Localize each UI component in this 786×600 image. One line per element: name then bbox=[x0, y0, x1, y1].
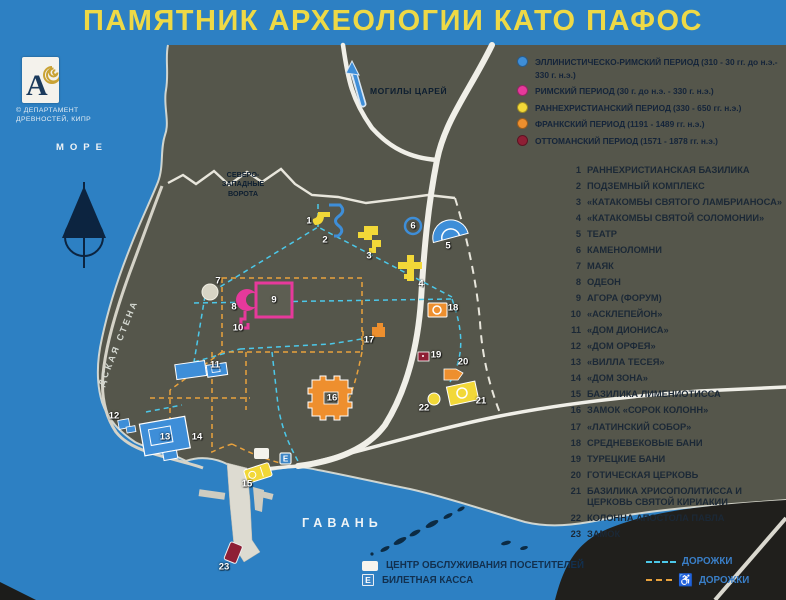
list-item: 3 «КАТАКОМБЫ СВЯТОГО ЛАМБРИАНОСА» bbox=[566, 197, 784, 208]
list-item: 22 КОЛОННА АПОСТОЛА ПАВЛА bbox=[566, 513, 784, 524]
site-name: ОДЕОН bbox=[587, 277, 784, 288]
list-item: 11 «ДОМ ДИОНИСА» bbox=[566, 325, 784, 336]
period-dates: (30 г. до н.э. - 330 г. н.э.) bbox=[617, 86, 714, 96]
site-marker: 5 bbox=[445, 241, 450, 252]
site-number: 21 bbox=[566, 486, 581, 508]
list-item: 20 ГОТИЧЕСКАЯ ЦЕРКОВЬ bbox=[566, 470, 784, 481]
list-item: 17 «ЛАТИНСКИЙ СОБОР» bbox=[566, 422, 784, 433]
paths-label: ДОРОЖКИ bbox=[682, 556, 732, 567]
wheelchair-icon: ♿ bbox=[678, 574, 693, 586]
paths-legend: ДОРОЖКИ ♿ ДОРОЖКИ bbox=[646, 556, 749, 586]
site-number: 18 bbox=[566, 438, 581, 449]
list-item: 1 РАННЕХРИСТИАНСКАЯ БАЗИЛИКА bbox=[566, 165, 784, 176]
list-item: 10 «АСКЛЕПЕЙОН» bbox=[566, 309, 784, 320]
site-name: КОЛОННА АПОСТОЛА ПАВЛА bbox=[587, 513, 784, 524]
site-number: 16 bbox=[566, 405, 581, 416]
orange-dashed-line-icon bbox=[646, 579, 672, 581]
site-number: 13 bbox=[566, 357, 581, 368]
ticket-office-label: БИЛЕТНАЯ КАССА bbox=[382, 575, 473, 586]
period-color-dot bbox=[517, 118, 528, 129]
nw-gate-label: СЕВЕРО- ЗАПАДНЫЕ ВОРОТА bbox=[210, 170, 276, 198]
site-name: РАННЕХРИСТИАНСКАЯ БАЗИЛИКА bbox=[587, 165, 784, 176]
site-number: 2 bbox=[566, 181, 581, 192]
period-dates: (1191 - 1489 гг. н.э.) bbox=[627, 119, 704, 129]
period-dates: (1571 - 1878 гг. н.э.) bbox=[640, 136, 718, 146]
site-name: КАМЕНОЛОМНИ bbox=[587, 245, 784, 256]
site-marker: 7 bbox=[215, 276, 220, 287]
legend-paths: ДОРОЖКИ bbox=[646, 556, 749, 567]
site-number: 23 bbox=[566, 529, 581, 540]
site-number: 14 bbox=[566, 373, 581, 384]
north-symbol bbox=[62, 182, 106, 268]
list-item: 15 БАЗИЛИКА ЛИМЕНИОТИССА bbox=[566, 389, 784, 400]
site-marker: 3 bbox=[366, 251, 371, 262]
site-number: 5 bbox=[566, 229, 581, 240]
list-item: 8 ОДЕОН bbox=[566, 277, 784, 288]
site-marker: 16 bbox=[327, 393, 338, 404]
facilities-legend: ЦЕНТР ОБСЛУЖИВАНИЯ ПОСЕТИТЕЛЕЙ E БИЛЕТНА… bbox=[362, 560, 584, 586]
list-item: 6 КАМЕНОЛОМНИ bbox=[566, 245, 784, 256]
list-item: 14 «ДОМ ЗОНА» bbox=[566, 373, 784, 384]
site-marker: 14 bbox=[192, 432, 203, 443]
sea-label: МОРЕ bbox=[56, 142, 108, 153]
svg-text:E: E bbox=[283, 455, 289, 464]
site-name: ПОДЗЕМНЫЙ КОМПЛЕКС bbox=[587, 181, 784, 192]
site-name: БАЗИЛИКА ХРИСОПОЛИТИССА И ЦЕРКОВЬ СВЯТОЙ… bbox=[587, 486, 784, 508]
site-number: 19 bbox=[566, 454, 581, 465]
period-legend-item: ОТТОМАНСКИЙ ПЕРИОД(1571 - 1878 гг. н.э.) bbox=[517, 135, 783, 148]
site-name: «ДОМ ОРФЕЯ» bbox=[587, 341, 784, 352]
site-marker: 17 bbox=[364, 335, 375, 346]
list-item: 23 ЗАМОК bbox=[566, 529, 784, 540]
period-legend-item: ФРАНКСКИЙ ПЕРИОД(1191 - 1489 гг. н.э.) bbox=[517, 118, 783, 131]
site-number: 3 bbox=[566, 197, 581, 208]
site-marker: 19 bbox=[431, 350, 442, 361]
info-board: ПАМЯТНИК АРХЕОЛОГИИ КАТО ПАФОС bbox=[0, 0, 786, 600]
list-item: 5 ТЕАТР bbox=[566, 229, 784, 240]
site-marker: 8 bbox=[231, 302, 236, 313]
site-number: 10 bbox=[566, 309, 581, 320]
site-number: 6 bbox=[566, 245, 581, 256]
harbor-label: ГАВАНЬ bbox=[302, 516, 383, 530]
legend-ticket-office: E БИЛЕТНАЯ КАССА bbox=[362, 574, 584, 586]
site-name: ЗАМОК «СОРОК КОЛОНН» bbox=[587, 405, 784, 416]
list-item: 7 МАЯК bbox=[566, 261, 784, 272]
period-label: РИМСКИЙ ПЕРИОД bbox=[535, 86, 615, 96]
logo-caption: © ДЕПАРТАМЕНТ ДРЕВНОСТЕЙ, КИПР bbox=[16, 106, 91, 124]
site-marker: 11 bbox=[210, 360, 220, 371]
period-dates: (330 - 650 гг. н.э.) bbox=[673, 103, 741, 113]
period-color-dot bbox=[517, 56, 528, 67]
site-name: «ВИЛЛА ТЕСЕЯ» bbox=[587, 357, 784, 368]
site-number: 11 bbox=[566, 325, 581, 336]
site-name: ГОТИЧЕСКАЯ ЦЕРКОВЬ bbox=[587, 470, 784, 481]
cyan-dashed-line-icon bbox=[646, 561, 676, 563]
site-number: 12 bbox=[566, 341, 581, 352]
site-number: 9 bbox=[566, 293, 581, 304]
site-name: «ДОМ ЗОНА» bbox=[587, 373, 784, 384]
site-name: АГОРА (ФОРУМ) bbox=[587, 293, 784, 304]
list-item: 21 БАЗИЛИКА ХРИСОПОЛИТИССА И ЦЕРКОВЬ СВЯ… bbox=[566, 486, 784, 508]
site-name: ТУРЕЦКИЕ БАНИ bbox=[587, 454, 784, 465]
site-shape-19 bbox=[418, 352, 429, 361]
list-item: 18 СРЕДНЕВЕКОВЫЕ БАНИ bbox=[566, 438, 784, 449]
site-marker: 23 bbox=[219, 562, 230, 573]
site-name: СРЕДНЕВЕКОВЫЕ БАНИ bbox=[587, 438, 784, 449]
ticket-office-icon: E bbox=[280, 453, 291, 464]
site-number: 17 bbox=[566, 422, 581, 433]
site-marker: 10 bbox=[233, 323, 244, 334]
site-name: «ДОМ ДИОНИСА» bbox=[587, 325, 784, 336]
site-number: 22 bbox=[566, 513, 581, 524]
site-marker: 15 bbox=[242, 479, 253, 490]
site-marker: 4 bbox=[418, 279, 423, 290]
site-number: 20 bbox=[566, 470, 581, 481]
list-item: 4 «КАТАКОМБЫ СВЯТОЙ СОЛОМОНИИ» bbox=[566, 213, 784, 224]
list-item: 2 ПОДЗЕМНЫЙ КОМПЛЕКС bbox=[566, 181, 784, 192]
site-name: БАЗИЛИКА ЛИМЕНИОТИССА bbox=[587, 389, 784, 400]
site-marker: 20 bbox=[458, 357, 469, 368]
visitor-center-icon bbox=[254, 448, 269, 459]
period-legend-item: РАННЕХРИСТИАНСКИЙ ПЕРИОД(330 - 650 гг. н… bbox=[517, 102, 783, 115]
site-marker: 6 bbox=[410, 221, 415, 232]
site-marker: 1 bbox=[306, 216, 311, 227]
legend-visitor-center: ЦЕНТР ОБСЛУЖИВАНИЯ ПОСЕТИТЕЛЕЙ bbox=[362, 560, 584, 571]
ticket-office-legend-icon: E bbox=[362, 574, 374, 586]
site-name: МАЯК bbox=[587, 261, 784, 272]
site-number: 8 bbox=[566, 277, 581, 288]
visitor-center-label: ЦЕНТР ОБСЛУЖИВАНИЯ ПОСЕТИТЕЛЕЙ bbox=[386, 560, 584, 571]
site-marker: 13 bbox=[160, 432, 171, 443]
list-item: 16 ЗАМОК «СОРОК КОЛОНН» bbox=[566, 405, 784, 416]
tombs-of-kings-label: МОГИЛЫ ЦАРЕЙ bbox=[370, 86, 447, 96]
site-name: ТЕАТР bbox=[587, 229, 784, 240]
visitor-center-legend-icon bbox=[362, 561, 378, 571]
period-color-dot bbox=[517, 102, 528, 113]
period-label: РАННЕХРИСТИАНСКИЙ ПЕРИОД bbox=[535, 103, 671, 113]
period-label: ФРАНКСКИЙ ПЕРИОД bbox=[535, 119, 625, 129]
site-marker: 2 bbox=[322, 235, 327, 246]
department-logo: A bbox=[22, 57, 59, 103]
period-color-dot bbox=[517, 135, 528, 146]
period-legend-item: ЭЛЛИНИСТИЧЕСКО-РИМСКИЙ ПЕРИОД(310 - 30 г… bbox=[517, 56, 783, 81]
site-marker: 22 bbox=[419, 403, 430, 414]
periods-legend: ЭЛЛИНИСТИЧЕСКО-РИМСКИЙ ПЕРИОД(310 - 30 г… bbox=[517, 56, 783, 148]
period-label: ЭЛЛИНИСТИЧЕСКО-РИМСКИЙ ПЕРИОД bbox=[535, 57, 699, 67]
period-label: ОТТОМАНСКИЙ ПЕРИОД bbox=[535, 136, 638, 146]
site-number: 7 bbox=[566, 261, 581, 272]
accessible-paths-label: ДОРОЖКИ bbox=[699, 575, 749, 586]
site-shape-18 bbox=[428, 303, 447, 317]
site-number: 4 bbox=[566, 213, 581, 224]
list-item: 19 ТУРЕЦКИЕ БАНИ bbox=[566, 454, 784, 465]
list-item: 9 АГОРА (ФОРУМ) bbox=[566, 293, 784, 304]
site-name: «КАТАКОМБЫ СВЯТОЙ СОЛОМОНИИ» bbox=[587, 213, 784, 224]
site-number: 1 bbox=[566, 165, 581, 176]
site-number: 15 bbox=[566, 389, 581, 400]
list-item: 12 «ДОМ ОРФЕЯ» bbox=[566, 341, 784, 352]
site-marker: 9 bbox=[271, 295, 276, 306]
site-name: ЗАМОК bbox=[587, 529, 784, 540]
site-name: «ЛАТИНСКИЙ СОБОР» bbox=[587, 422, 784, 433]
period-color-dot bbox=[517, 85, 528, 96]
site-marker: 12 bbox=[109, 411, 120, 422]
site-marker: 18 bbox=[448, 303, 459, 314]
site-name: «КАТАКОМБЫ СВЯТОГО ЛАМБРИАНОСА» bbox=[587, 197, 784, 208]
site-name: «АСКЛЕПЕЙОН» bbox=[587, 309, 784, 320]
site-marker: 21 bbox=[476, 396, 487, 407]
sites-list: 1 РАННЕХРИСТИАНСКАЯ БАЗИЛИКА 2 ПОДЗЕМНЫЙ… bbox=[566, 165, 784, 540]
legend-accessible-paths: ♿ ДОРОЖКИ bbox=[646, 574, 749, 586]
site-shape-22 bbox=[428, 393, 440, 405]
period-legend-item: РИМСКИЙ ПЕРИОД(30 г. до н.э. - 330 г. н.… bbox=[517, 85, 783, 98]
list-item: 13 «ВИЛЛА ТЕСЕЯ» bbox=[566, 357, 784, 368]
